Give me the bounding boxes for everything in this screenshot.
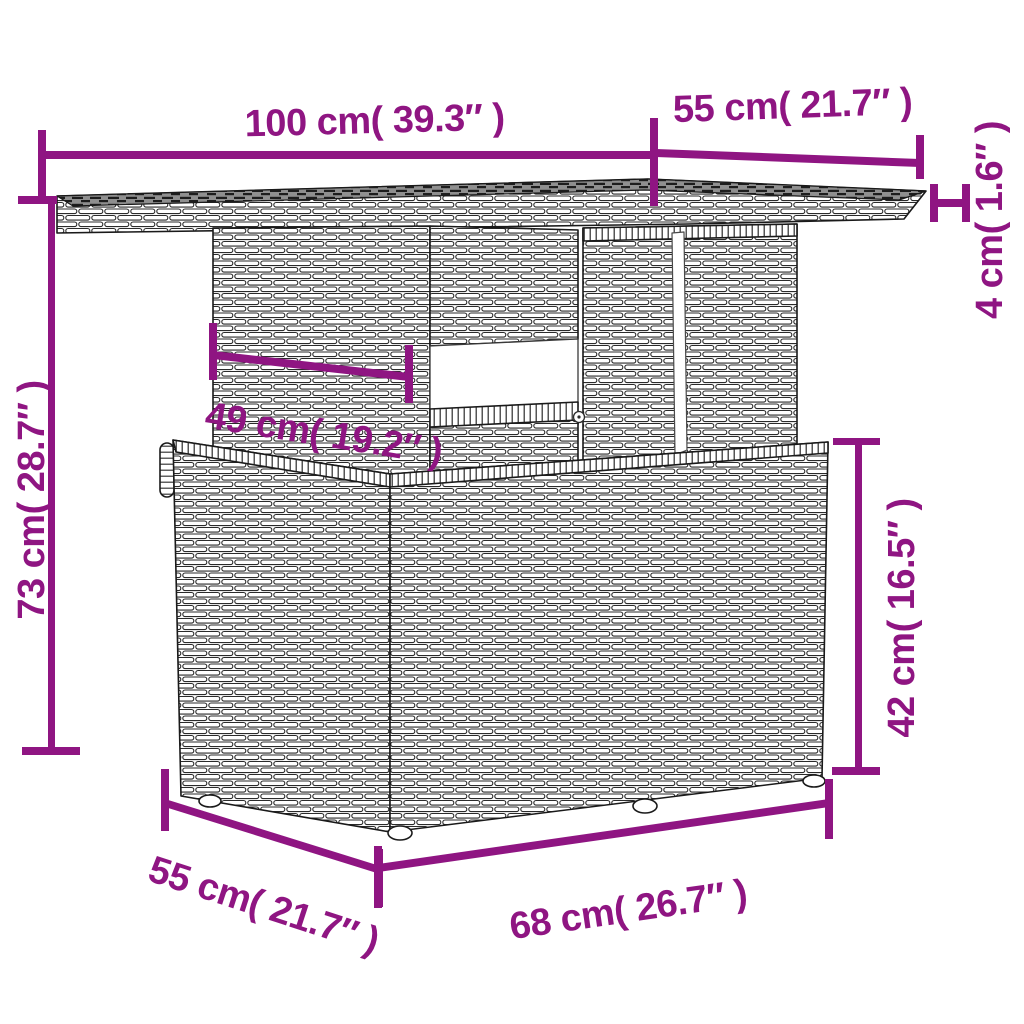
pedestal-middle-panel — [430, 226, 578, 346]
table-foot — [199, 795, 221, 807]
dim-base-height-line — [855, 441, 862, 771]
dimension-diagram-canvas: 100 cm( 39.3″ ) 55 cm( 21.7″ ) 4 cm( 1.6… — [0, 0, 1024, 1024]
dim-top-depth-line — [656, 149, 920, 167]
dim-top-width-label: 100 cm( 39.3″ ) — [244, 97, 505, 146]
dim-total-height: 73 cm( 28.7″ ) — [11, 196, 80, 755]
pedestal-right-panel — [583, 224, 797, 470]
dim-base-height-label: 42 cm( 16.5″ ) — [881, 498, 923, 737]
table-foot — [633, 799, 657, 813]
dim-total-height-tick-top — [18, 196, 57, 204]
dim-base-height-tick-top — [833, 438, 880, 445]
dim-top-thickness: 4 cm( 1.6″ ) — [930, 121, 1011, 319]
dim-base-height-tick-bottom — [832, 767, 880, 775]
dim-top-depth-label: 55 cm( 21.7″ ) — [672, 81, 913, 131]
table-foot — [803, 775, 825, 787]
screw-detail-center — [577, 415, 580, 418]
dim-total-height-label: 73 cm( 28.7″ ) — [11, 380, 53, 619]
dim-base-depth-label: 55 cm( 21.7″ ) — [143, 849, 384, 963]
dim-base-width-label: 68 cm( 26.7″ ) — [507, 872, 750, 948]
dim-top-depth: 55 cm( 21.7″ ) — [656, 81, 924, 179]
base-left-face — [173, 440, 390, 832]
dimension-diagram-svg: 100 cm( 39.3″ ) 55 cm( 21.7″ ) 4 cm( 1.6… — [0, 0, 1024, 1024]
dim-top-width-tick-right — [650, 118, 658, 206]
dim-base-depth-tick-right — [375, 849, 383, 907]
pedestal-right-divider — [672, 232, 687, 455]
dim-top-thickness-label: 4 cm( 1.6″ ) — [969, 121, 1011, 319]
base-front-face — [390, 442, 828, 832]
dim-top-width-line — [42, 151, 658, 159]
table-foot — [388, 826, 412, 840]
dim-base-height: 42 cm( 16.5″ ) — [832, 438, 923, 775]
pedestal-left-tube — [160, 443, 174, 497]
dim-inner-width-tick-left — [209, 323, 217, 380]
dim-top-width-tick-left — [38, 130, 46, 196]
dim-top-thickness-crossbar — [930, 199, 970, 207]
dim-base-width-tick-right — [825, 779, 833, 839]
table-illustration — [57, 179, 926, 840]
dim-base-depth-tick-left — [161, 769, 169, 831]
dim-total-height-tick-bottom — [22, 747, 80, 755]
dim-top-depth-tick-right — [916, 135, 924, 179]
dim-inner-width-tick-right — [405, 345, 413, 403]
